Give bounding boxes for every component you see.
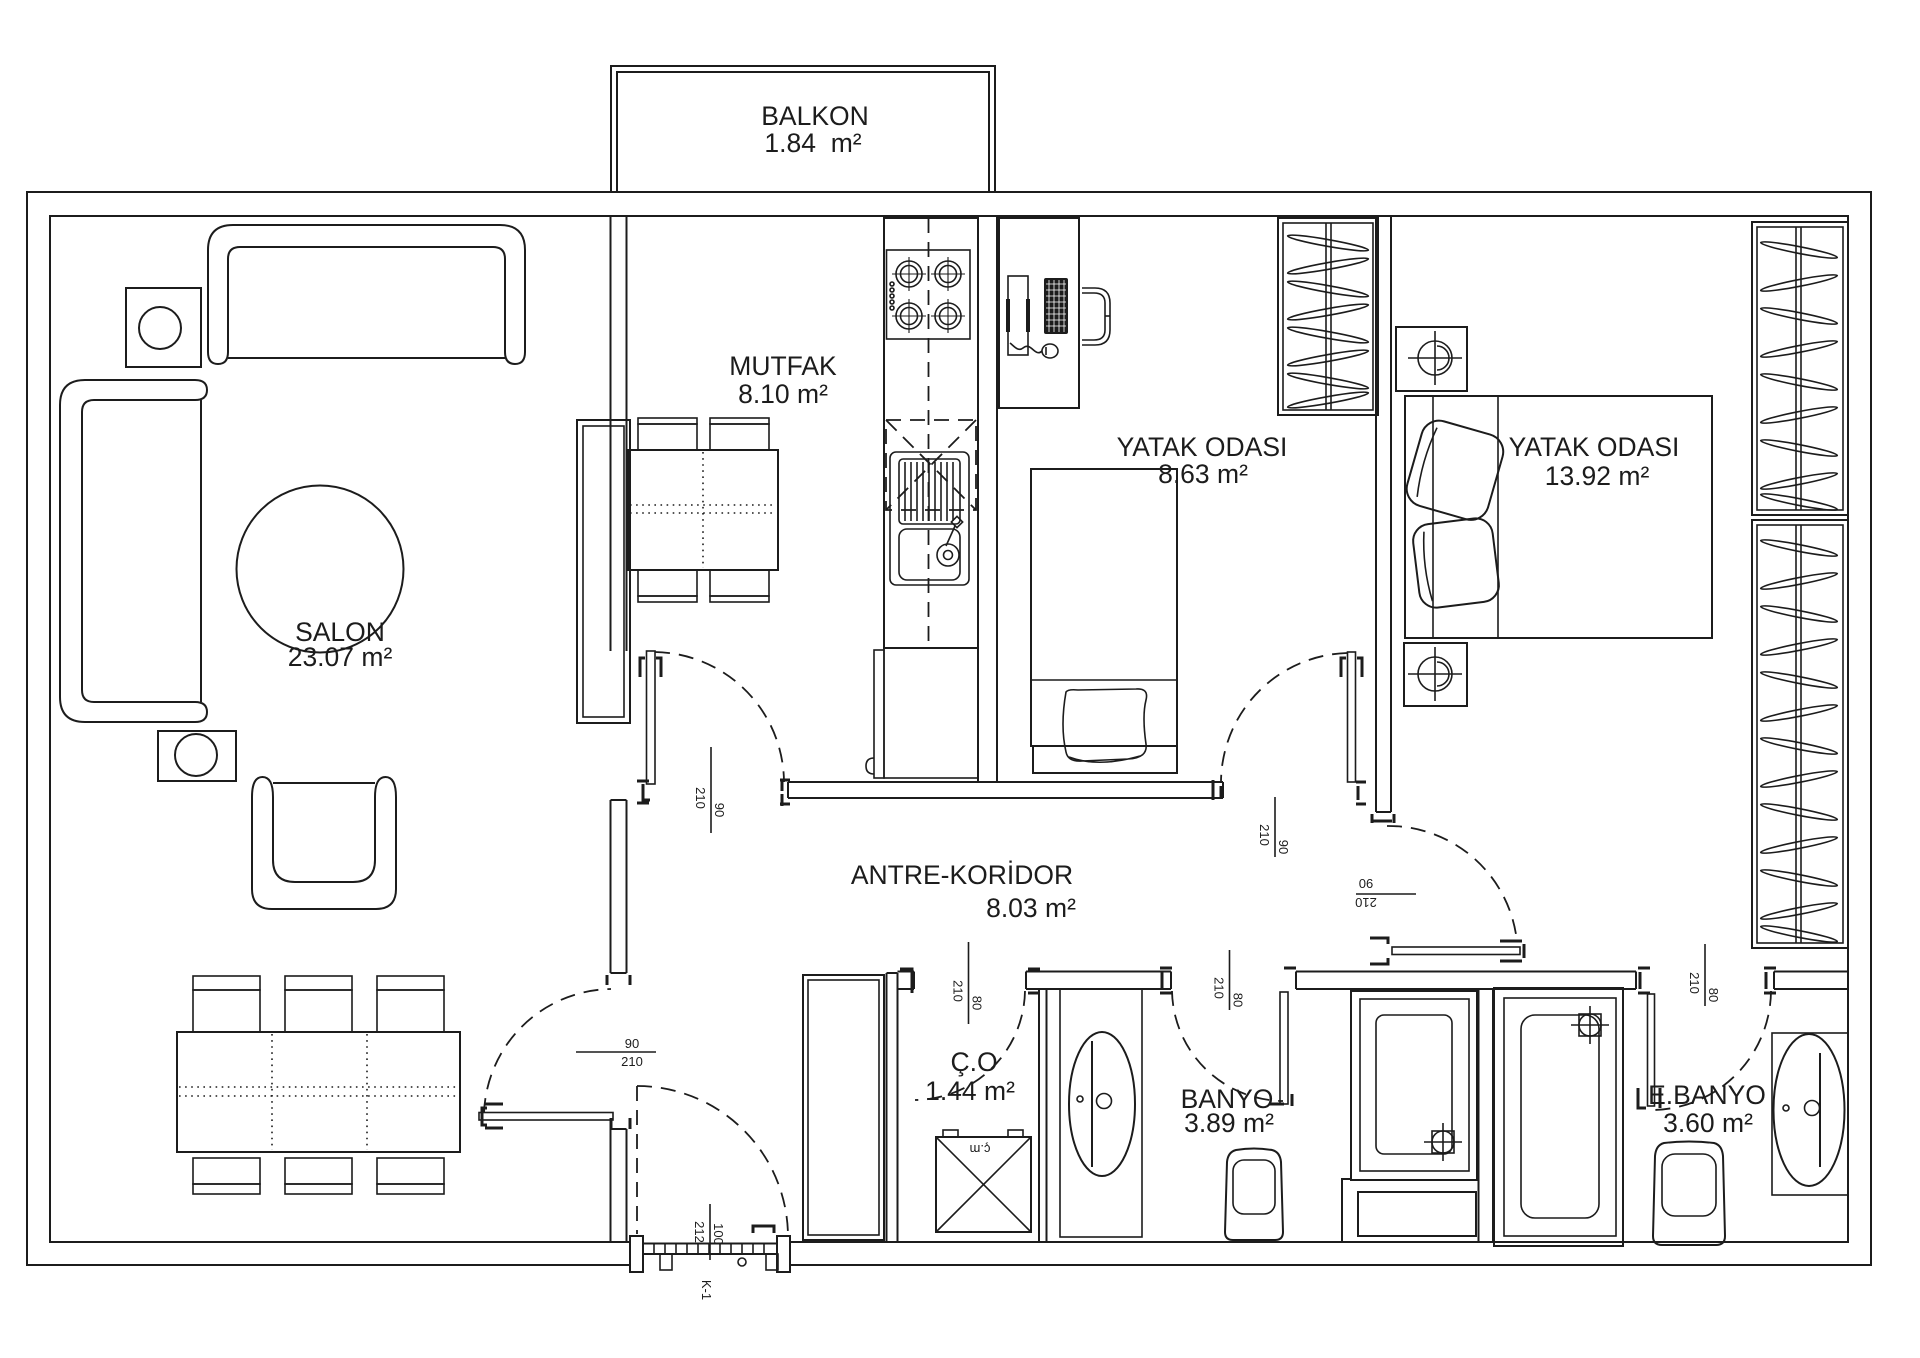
svg-text:Ç.O: Ç.O bbox=[950, 1047, 997, 1077]
svg-text:1.84 m²: 1.84 m² bbox=[764, 128, 861, 158]
svg-text:210: 210 bbox=[1212, 977, 1227, 999]
svg-text:90: 90 bbox=[1276, 840, 1291, 854]
svg-text:210: 210 bbox=[693, 787, 708, 809]
svg-text:13.92 m²: 13.92 m² bbox=[1545, 461, 1650, 491]
svg-text:YATAK ODASI: YATAK ODASI bbox=[1117, 432, 1288, 462]
svg-text:E.BANYO: E.BANYO bbox=[1648, 1080, 1766, 1110]
svg-text:210: 210 bbox=[621, 1054, 643, 1069]
svg-text:K-1: K-1 bbox=[699, 1280, 714, 1300]
svg-text:23.07 m²: 23.07 m² bbox=[288, 642, 393, 672]
svg-text:3.89 m²: 3.89 m² bbox=[1184, 1108, 1274, 1138]
svg-text:100: 100 bbox=[711, 1223, 726, 1245]
svg-text:8.63 m²: 8.63 m² bbox=[1158, 459, 1248, 489]
svg-text:ç.m: ç.m bbox=[970, 1142, 991, 1157]
svg-text:3.60 m²: 3.60 m² bbox=[1663, 1108, 1753, 1138]
svg-text:BALKON: BALKON bbox=[761, 101, 869, 131]
svg-text:MUTFAK: MUTFAK bbox=[729, 351, 837, 381]
svg-text:210: 210 bbox=[1257, 824, 1272, 846]
svg-text:1.44 m²: 1.44 m² bbox=[925, 1076, 1015, 1106]
svg-text:80: 80 bbox=[1706, 988, 1721, 1002]
svg-text:212: 212 bbox=[692, 1221, 707, 1243]
svg-text:80: 80 bbox=[970, 996, 985, 1010]
svg-text:90: 90 bbox=[1359, 876, 1373, 891]
svg-text:8.03 m²: 8.03 m² bbox=[986, 893, 1076, 923]
svg-text:210: 210 bbox=[951, 980, 966, 1002]
svg-text:8.10 m²: 8.10 m² bbox=[738, 379, 828, 409]
svg-text:90: 90 bbox=[625, 1036, 639, 1051]
svg-text:80: 80 bbox=[1231, 993, 1246, 1007]
svg-text:210: 210 bbox=[1687, 972, 1702, 994]
svg-text:210: 210 bbox=[1355, 895, 1377, 910]
svg-text:ANTRE-KORİDOR: ANTRE-KORİDOR bbox=[851, 860, 1073, 890]
svg-text:90: 90 bbox=[712, 803, 727, 817]
svg-text:YATAK ODASI: YATAK ODASI bbox=[1509, 432, 1680, 462]
